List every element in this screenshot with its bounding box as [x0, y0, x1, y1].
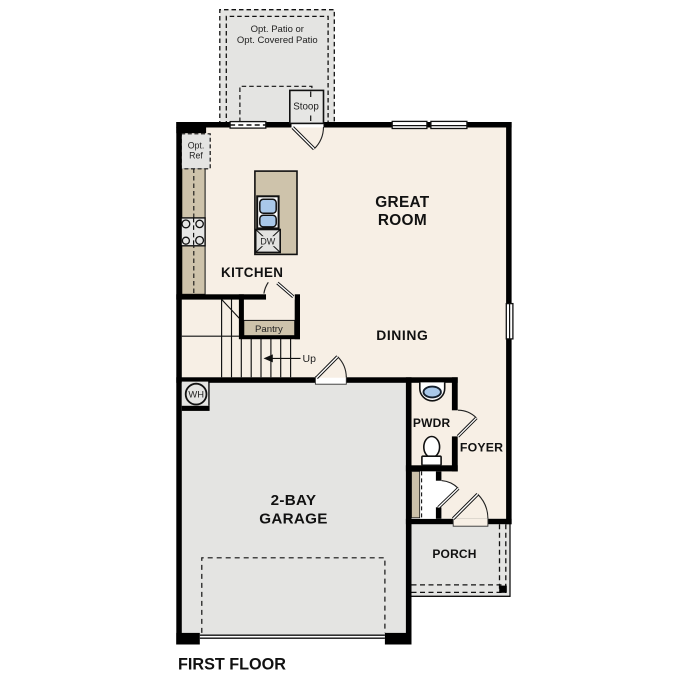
svg-text:FIRST FLOOR: FIRST FLOOR	[178, 656, 286, 674]
svg-text:GREAT: GREAT	[375, 194, 430, 211]
svg-text:Stoop: Stoop	[293, 101, 319, 112]
svg-text:DW: DW	[260, 237, 275, 247]
svg-text:WH: WH	[188, 389, 204, 400]
svg-text:Pantry: Pantry	[255, 324, 283, 335]
svg-text:Opt. Covered Patio: Opt. Covered Patio	[237, 35, 318, 46]
svg-text:PORCH: PORCH	[432, 547, 476, 561]
svg-text:KITCHEN: KITCHEN	[221, 265, 283, 280]
svg-text:PWDR: PWDR	[413, 416, 451, 430]
svg-text:GARAGE: GARAGE	[259, 511, 327, 528]
svg-text:DINING: DINING	[376, 327, 428, 343]
svg-text:2-BAY: 2-BAY	[271, 492, 317, 509]
svg-text:Up: Up	[303, 353, 317, 365]
svg-text:Opt. Patio or: Opt. Patio or	[251, 24, 304, 35]
svg-text:Ref: Ref	[189, 151, 203, 161]
svg-text:FOYER: FOYER	[460, 440, 503, 454]
svg-text:ROOM: ROOM	[378, 212, 427, 229]
svg-text:Opt.: Opt.	[188, 140, 205, 150]
